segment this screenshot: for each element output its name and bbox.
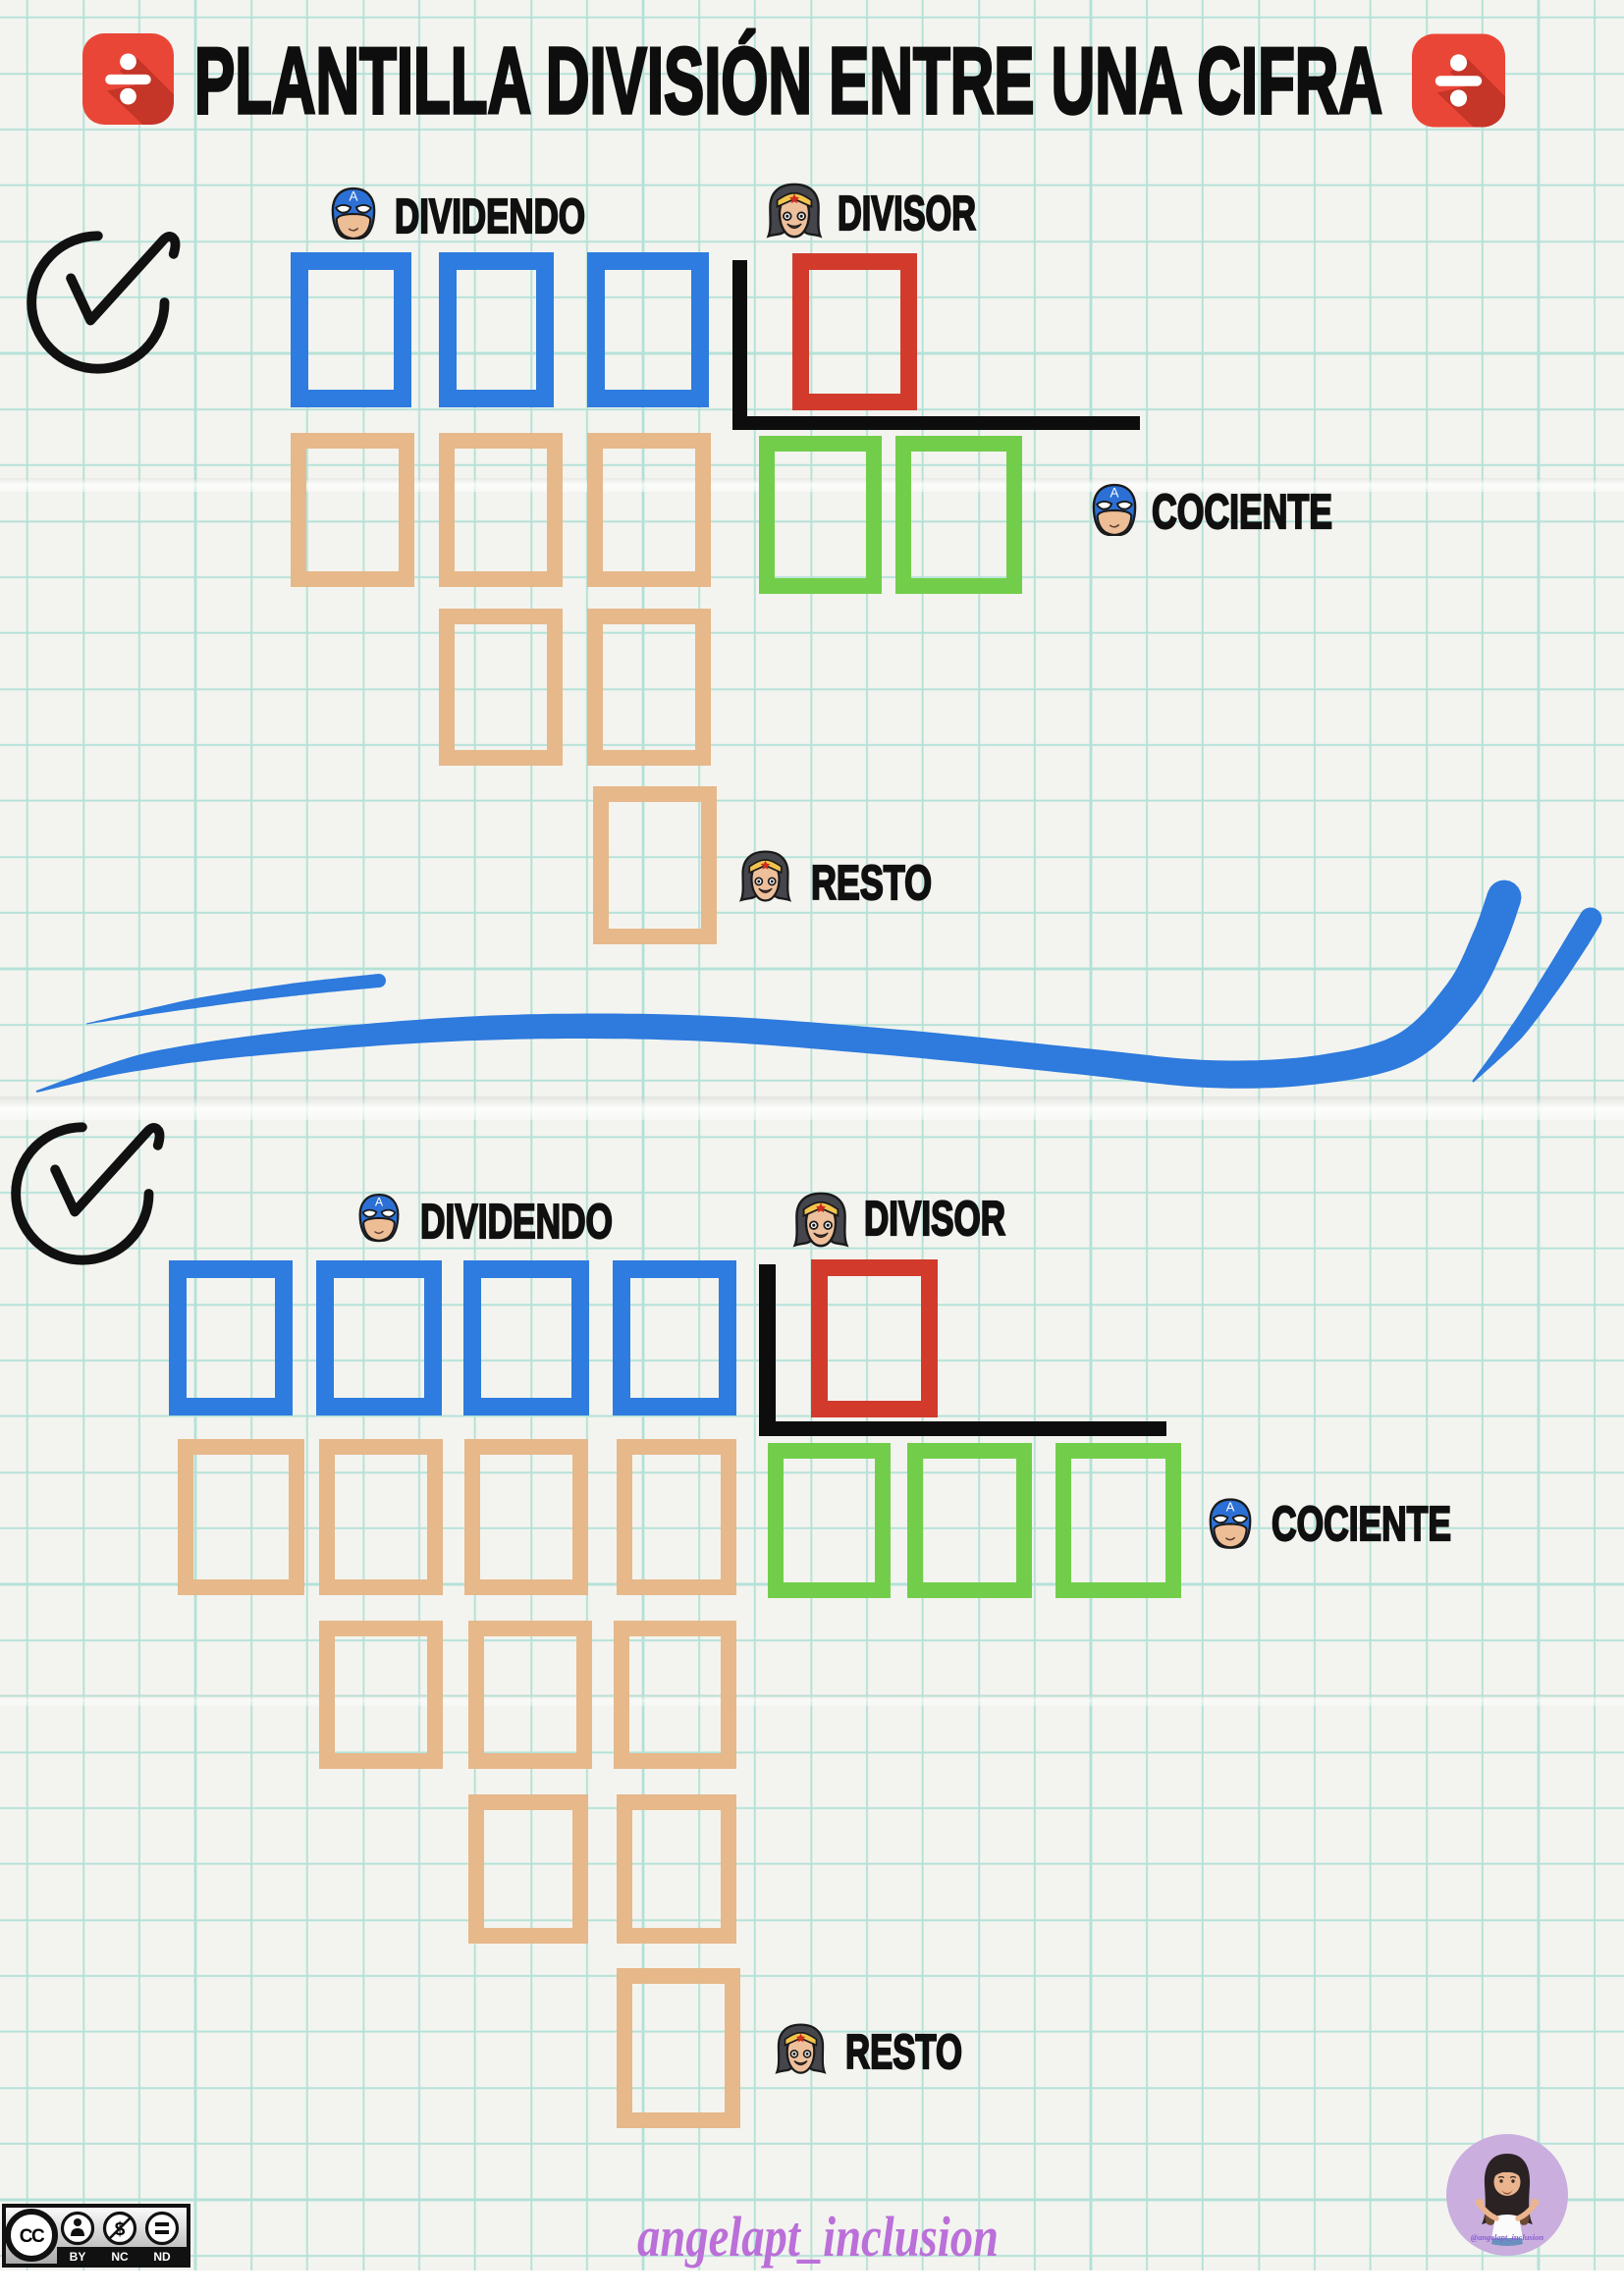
svg-text:ND: ND	[153, 2250, 171, 2264]
svg-text:PLANTILLA DIVISIÓN ENTRE UNA C: PLANTILLA DIVISIÓN ENTRE UNA CIFRA	[194, 28, 1382, 133]
svg-text:DIVISOR: DIVISOR	[864, 1195, 1005, 1244]
svg-text:angelapt_inclusion: angelapt_inclusion	[637, 2205, 999, 2269]
svg-text:RESTO: RESTO	[845, 2026, 962, 2077]
svg-text:BY: BY	[70, 2250, 86, 2264]
svg-text:COCIENTE: COCIENTE	[1152, 488, 1332, 537]
svg-text:DIVISOR: DIVISOR	[838, 189, 976, 239]
svg-text:DIVIDENDO: DIVIDENDO	[395, 192, 585, 241]
svg-text:@angelapt_inclusion: @angelapt_inclusion	[1471, 2232, 1543, 2242]
svg-text:COCIENTE: COCIENTE	[1272, 1500, 1451, 1549]
svg-text:NC: NC	[111, 2250, 129, 2264]
svg-text:CC: CC	[20, 2226, 45, 2247]
svg-text:DIVIDENDO: DIVIDENDO	[420, 1198, 613, 1247]
